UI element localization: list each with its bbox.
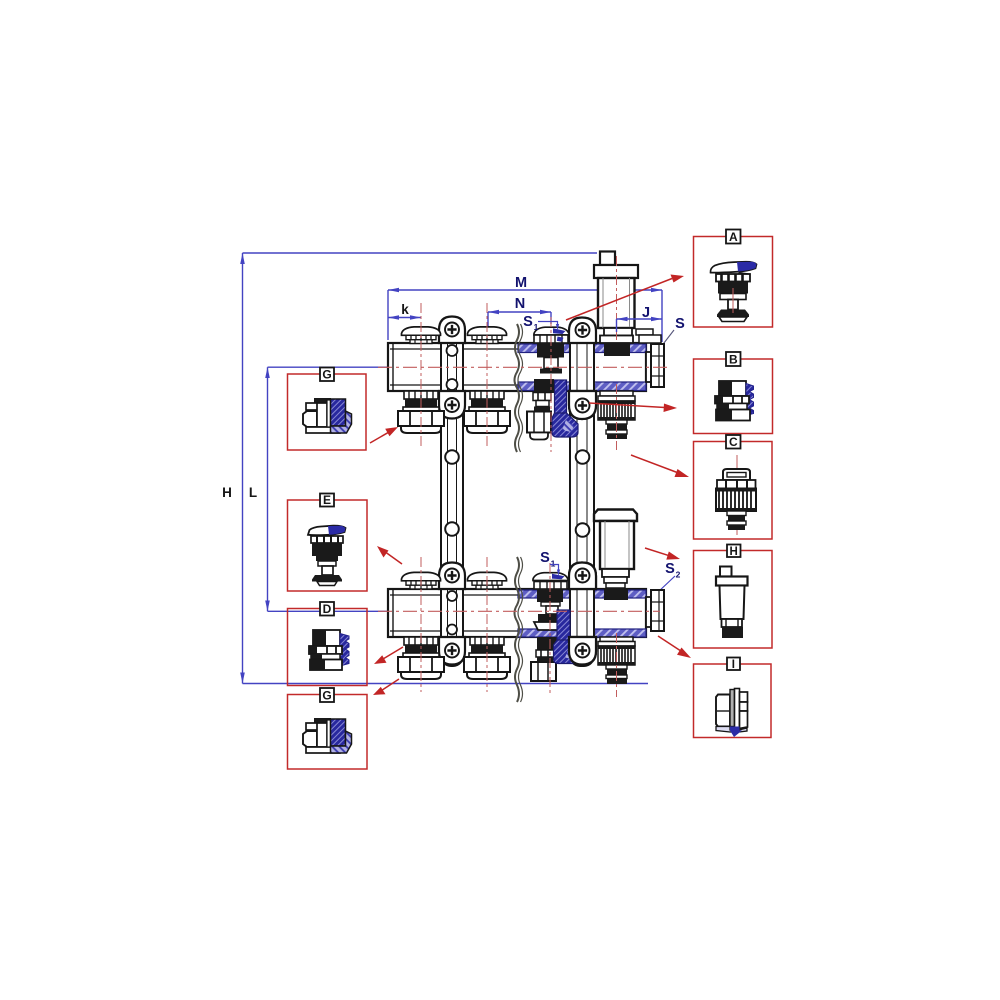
svg-text:S: S <box>675 316 685 332</box>
svg-text:S: S <box>540 550 550 566</box>
svg-text:G: G <box>322 368 331 382</box>
svg-text:A: A <box>729 230 738 244</box>
svg-text:H: H <box>222 485 232 500</box>
svg-text:N: N <box>515 296 525 312</box>
svg-text:k: k <box>401 302 409 317</box>
svg-text:C: C <box>729 435 738 449</box>
svg-text:G: G <box>322 689 331 703</box>
svg-text:H: H <box>729 546 737 558</box>
svg-text:E: E <box>323 493 331 507</box>
svg-text:M: M <box>515 275 527 291</box>
svg-text:L: L <box>249 485 257 500</box>
svg-text:S: S <box>665 561 675 577</box>
svg-text:1: 1 <box>551 559 556 569</box>
svg-text:2: 2 <box>676 570 681 580</box>
svg-text:D: D <box>323 602 332 616</box>
svg-text:S: S <box>523 314 533 330</box>
svg-text:1: 1 <box>534 322 539 332</box>
svg-text:I: I <box>732 659 735 671</box>
svg-text:B: B <box>729 353 738 367</box>
